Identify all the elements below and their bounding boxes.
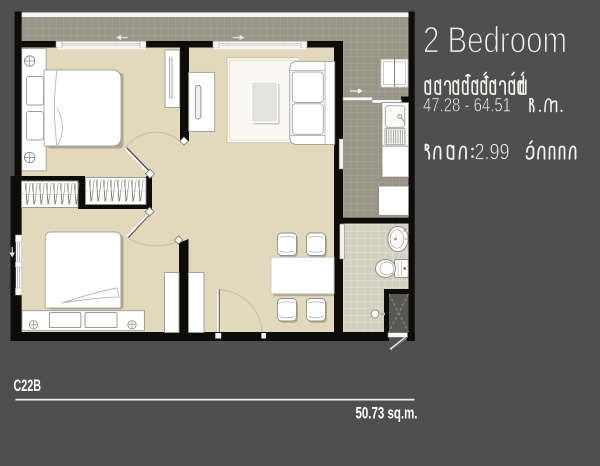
svg-text:47.28 - 64.51: 47.28 - 64.51	[423, 95, 511, 117]
svg-text:2.99: 2.99	[475, 139, 510, 165]
svg-text:C22B: C22B	[14, 377, 42, 395]
svg-text:2 Bedroom: 2 Bedroom	[423, 19, 567, 61]
svg-text:50.73 sq.m.: 50.73 sq.m.	[356, 404, 418, 423]
